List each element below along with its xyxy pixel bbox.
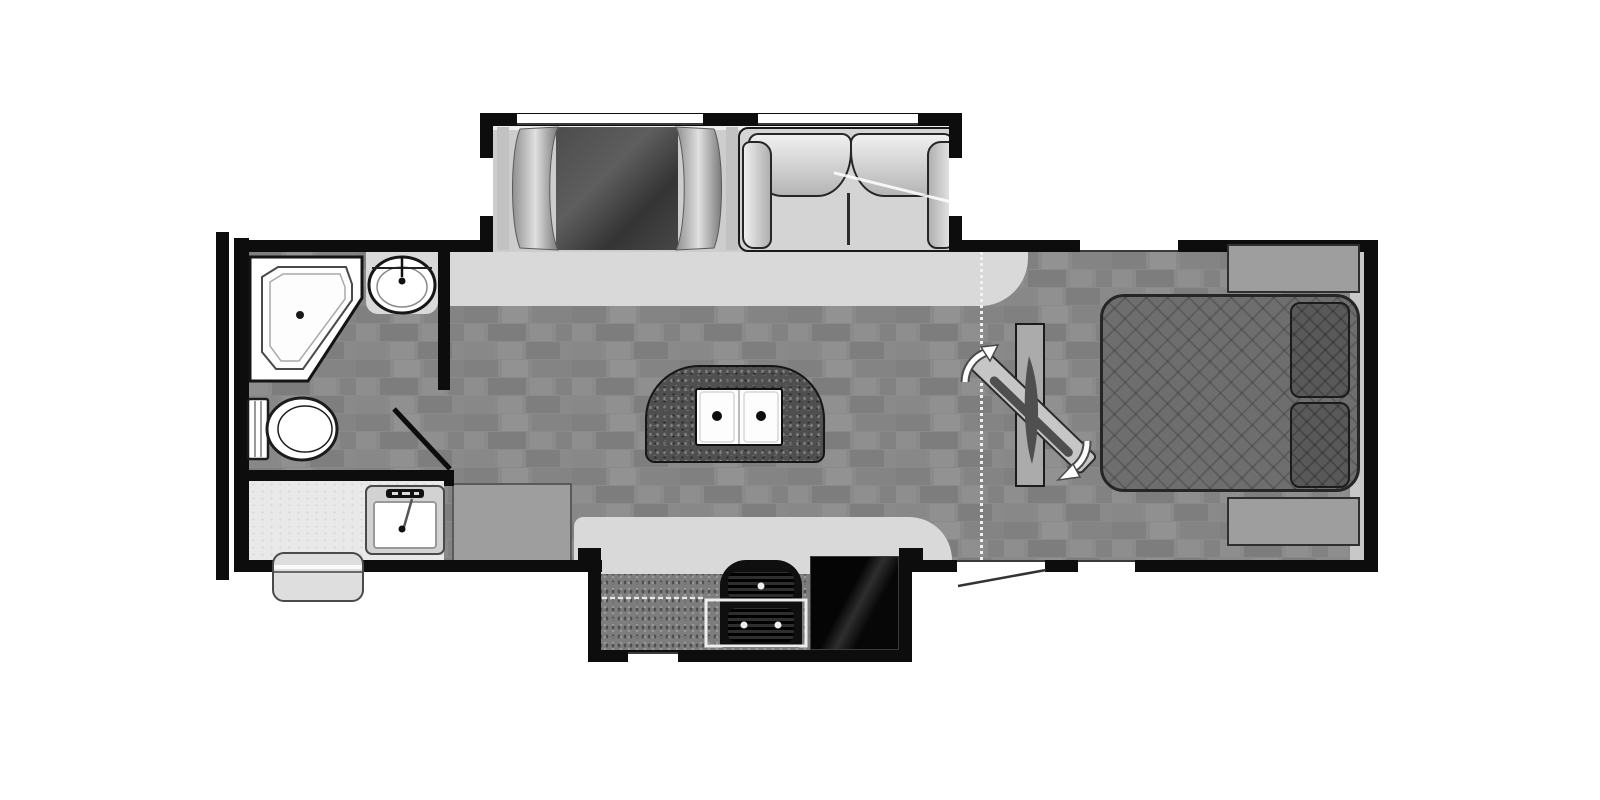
sofa-seat-seam — [847, 193, 850, 245]
refrigerator — [810, 556, 899, 650]
front-cap-outer — [216, 232, 229, 580]
island-double-sink — [695, 388, 783, 446]
rear-wall — [1364, 240, 1378, 572]
slideout-bottom-wall-left — [588, 556, 601, 662]
bathroom-wall-right — [438, 252, 450, 390]
stove-burner-row-bottom — [728, 608, 794, 642]
slideout-bottom-wall-right — [899, 556, 912, 662]
vanity-counter — [366, 252, 438, 314]
window — [1080, 240, 1178, 252]
bottom-wall-c — [1045, 560, 1078, 572]
step-tread-line — [274, 565, 362, 569]
entry-door-leaf — [958, 570, 1046, 586]
rv-floorplan — [0, 0, 1600, 800]
top-wall-b — [949, 240, 1080, 252]
sofa-arm-left — [742, 141, 772, 249]
countertop-top-wall — [450, 252, 1028, 306]
nightstand-bottom — [1227, 497, 1360, 546]
step-tread-line — [274, 571, 362, 573]
window — [480, 158, 493, 216]
window — [517, 114, 703, 125]
slideout-bottom-stub-left — [578, 548, 601, 561]
stove — [720, 560, 802, 648]
countertop-bottom-wall — [574, 517, 952, 560]
bottom-wall-d — [1135, 560, 1378, 572]
stove-burner-row-top — [728, 572, 794, 600]
sofa — [738, 127, 961, 252]
pillow-top — [1290, 302, 1350, 398]
entry-door-opening — [957, 560, 1045, 572]
top-wall-a — [234, 240, 492, 252]
window — [1078, 560, 1135, 572]
front-wall — [234, 238, 249, 572]
bottom-wall-b — [905, 560, 957, 572]
window — [628, 652, 678, 662]
entry-step — [272, 552, 364, 602]
curtain-divider — [980, 252, 983, 560]
nightstand-top — [1227, 244, 1360, 293]
window — [949, 158, 962, 216]
window — [758, 114, 918, 125]
bathroom-door-hinge-stub — [444, 470, 454, 486]
kitchen-counter-left — [249, 481, 444, 560]
bathroom-wall-bottom — [234, 470, 452, 481]
slideout-bottom-stub-right — [899, 548, 923, 561]
pantry-cabinet — [452, 483, 572, 562]
pillow-bottom — [1290, 402, 1350, 488]
